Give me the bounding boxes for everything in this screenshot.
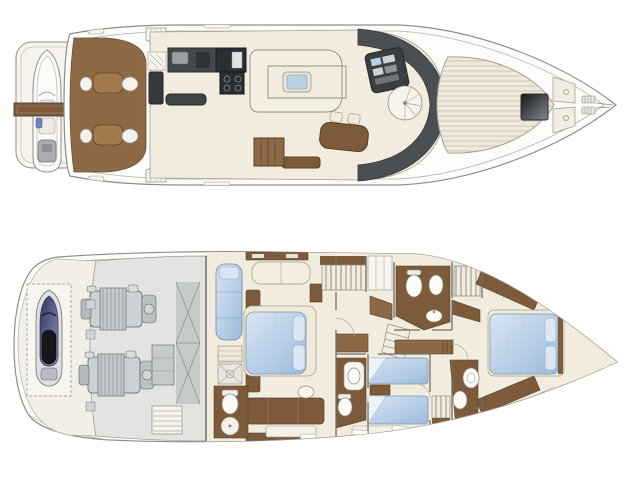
pillow bbox=[293, 316, 305, 341]
deck-hatch bbox=[521, 94, 548, 120]
jetski bbox=[36, 290, 62, 386]
closet bbox=[368, 256, 392, 290]
toilet bbox=[222, 394, 238, 414]
dinette-chair bbox=[330, 111, 343, 122]
pillow bbox=[545, 346, 556, 370]
equipment-box bbox=[86, 402, 95, 411]
cockpit-table-aft bbox=[93, 73, 123, 93]
cockpit bbox=[70, 38, 146, 172]
low-cabinet bbox=[456, 424, 486, 435]
master-ensuite bbox=[214, 386, 248, 438]
galley-sink bbox=[172, 52, 188, 64]
cockpit-seat bbox=[80, 129, 92, 143]
equipment-box bbox=[86, 330, 95, 339]
cabinet bbox=[310, 284, 322, 302]
equipment-box bbox=[86, 300, 95, 309]
dinette-table bbox=[319, 122, 369, 153]
toilet bbox=[338, 398, 352, 416]
chaise-pillow bbox=[219, 267, 239, 279]
corridor-landing bbox=[336, 334, 368, 352]
galley-island bbox=[149, 72, 163, 104]
toilet bbox=[453, 391, 467, 409]
headboard bbox=[558, 314, 563, 374]
windlass bbox=[582, 96, 595, 103]
bidet bbox=[429, 275, 443, 295]
fender bbox=[36, 118, 42, 128]
wardrobe bbox=[322, 265, 366, 290]
spiral-stair-post bbox=[403, 101, 407, 105]
wardrobe bbox=[432, 396, 450, 418]
engine-room-stairs bbox=[152, 406, 182, 434]
coffee-table-top bbox=[287, 75, 307, 89]
wardrobe bbox=[454, 266, 480, 296]
toilet bbox=[406, 275, 422, 297]
sideboard bbox=[282, 157, 320, 168]
passage-floor bbox=[395, 340, 453, 354]
jetski-seat bbox=[42, 330, 56, 364]
pedestal-sink bbox=[463, 368, 479, 388]
yacht-floorplan bbox=[0, 0, 642, 481]
jetski-stern-tray bbox=[41, 368, 57, 380]
lower-deck-plan bbox=[14, 252, 620, 444]
fuel-tank bbox=[176, 282, 200, 404]
yacht-floorplan-canvas bbox=[0, 0, 642, 481]
window-slit bbox=[286, 254, 298, 258]
generator bbox=[152, 345, 174, 385]
nightstand bbox=[370, 385, 390, 395]
window-slit bbox=[252, 254, 264, 258]
cistern bbox=[407, 270, 421, 275]
companionway-stairs bbox=[254, 138, 284, 166]
galley-oven bbox=[232, 52, 242, 68]
galley-stove bbox=[220, 72, 244, 94]
galley-appliance bbox=[196, 52, 210, 68]
chain-locker bbox=[582, 107, 595, 114]
spiral-staircase bbox=[388, 86, 422, 120]
stairs-box bbox=[152, 406, 182, 434]
cockpit-seat bbox=[80, 77, 92, 91]
master-dresser bbox=[246, 398, 324, 424]
boarding-gate-stbd bbox=[204, 182, 230, 188]
hull-window bbox=[539, 293, 556, 305]
boarding-gate-port bbox=[204, 22, 230, 28]
pillow bbox=[293, 345, 305, 370]
faucet bbox=[433, 311, 435, 313]
main-deck-plan bbox=[14, 22, 616, 188]
cockpit-seat bbox=[122, 129, 138, 143]
dinette-chair bbox=[347, 113, 360, 124]
shower-drain bbox=[229, 425, 232, 428]
sink bbox=[348, 368, 360, 384]
wardrobe-top-band bbox=[320, 256, 366, 265]
tender-engine-cap bbox=[42, 144, 52, 152]
stool bbox=[298, 386, 314, 398]
shelf-unit bbox=[218, 346, 242, 362]
galley-bench bbox=[166, 94, 206, 105]
cockpit-table-fwd bbox=[93, 125, 123, 145]
cockpit-seat bbox=[122, 77, 138, 91]
pillow bbox=[545, 318, 556, 342]
